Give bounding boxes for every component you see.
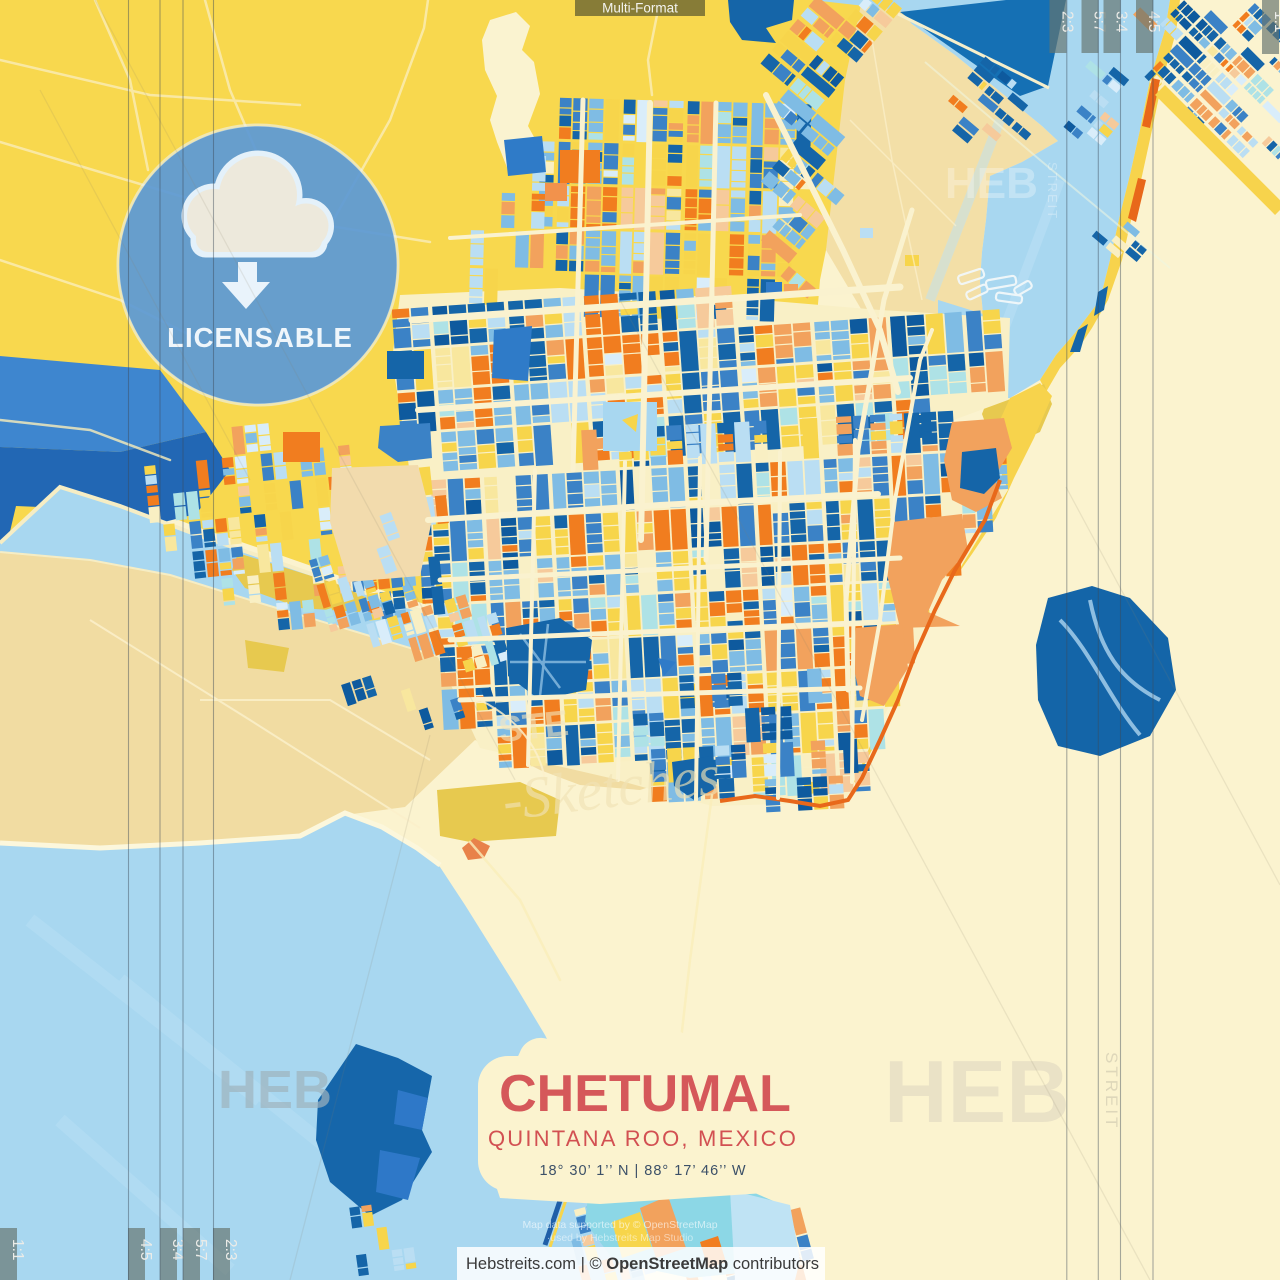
svg-text:CHETUMAL: CHETUMAL <box>499 1065 791 1123</box>
svg-text:STREIT: STREIT <box>1102 1052 1121 1130</box>
svg-text:1:1: 1:1 <box>1271 11 1280 33</box>
svg-text:QUINTANA ROO, MEXICO: QUINTANA ROO, MEXICO <box>488 1126 798 1151</box>
svg-text:2:3: 2:3 <box>222 1239 239 1261</box>
svg-text:STREIT: STREIT <box>1045 162 1060 220</box>
svg-text:Hebstreits.com | © OpenStreetM: Hebstreits.com | © OpenStreetMap contrib… <box>466 1255 819 1273</box>
svg-text:5:7: 5:7 <box>192 1239 209 1261</box>
svg-text:18° 30’ 1’’ N | 88° 17’: 18° 30’ 1’’ N | 88° 17’ 46’’ W <box>539 1163 746 1179</box>
svg-text:Multi-Format: Multi-Format <box>602 1 678 16</box>
svg-text:·used by Hebstreits Map Studio: ·used by Hebstreits Map Studio <box>547 1232 694 1244</box>
svg-text:Map data supported by © OpenSt: Map data supported by © OpenStreetMap <box>522 1219 717 1231</box>
svg-text:HEB: HEB <box>945 159 1038 208</box>
svg-text:1:1: 1:1 <box>9 1239 26 1261</box>
svg-text:LICENSABLE: LICENSABLE <box>167 322 353 353</box>
svg-text:HEB: HEB <box>218 1060 332 1120</box>
svg-text:STE: STE <box>497 702 571 750</box>
svg-text:4:5: 4:5 <box>137 1239 154 1261</box>
svg-text:HEB: HEB <box>884 1042 1070 1141</box>
